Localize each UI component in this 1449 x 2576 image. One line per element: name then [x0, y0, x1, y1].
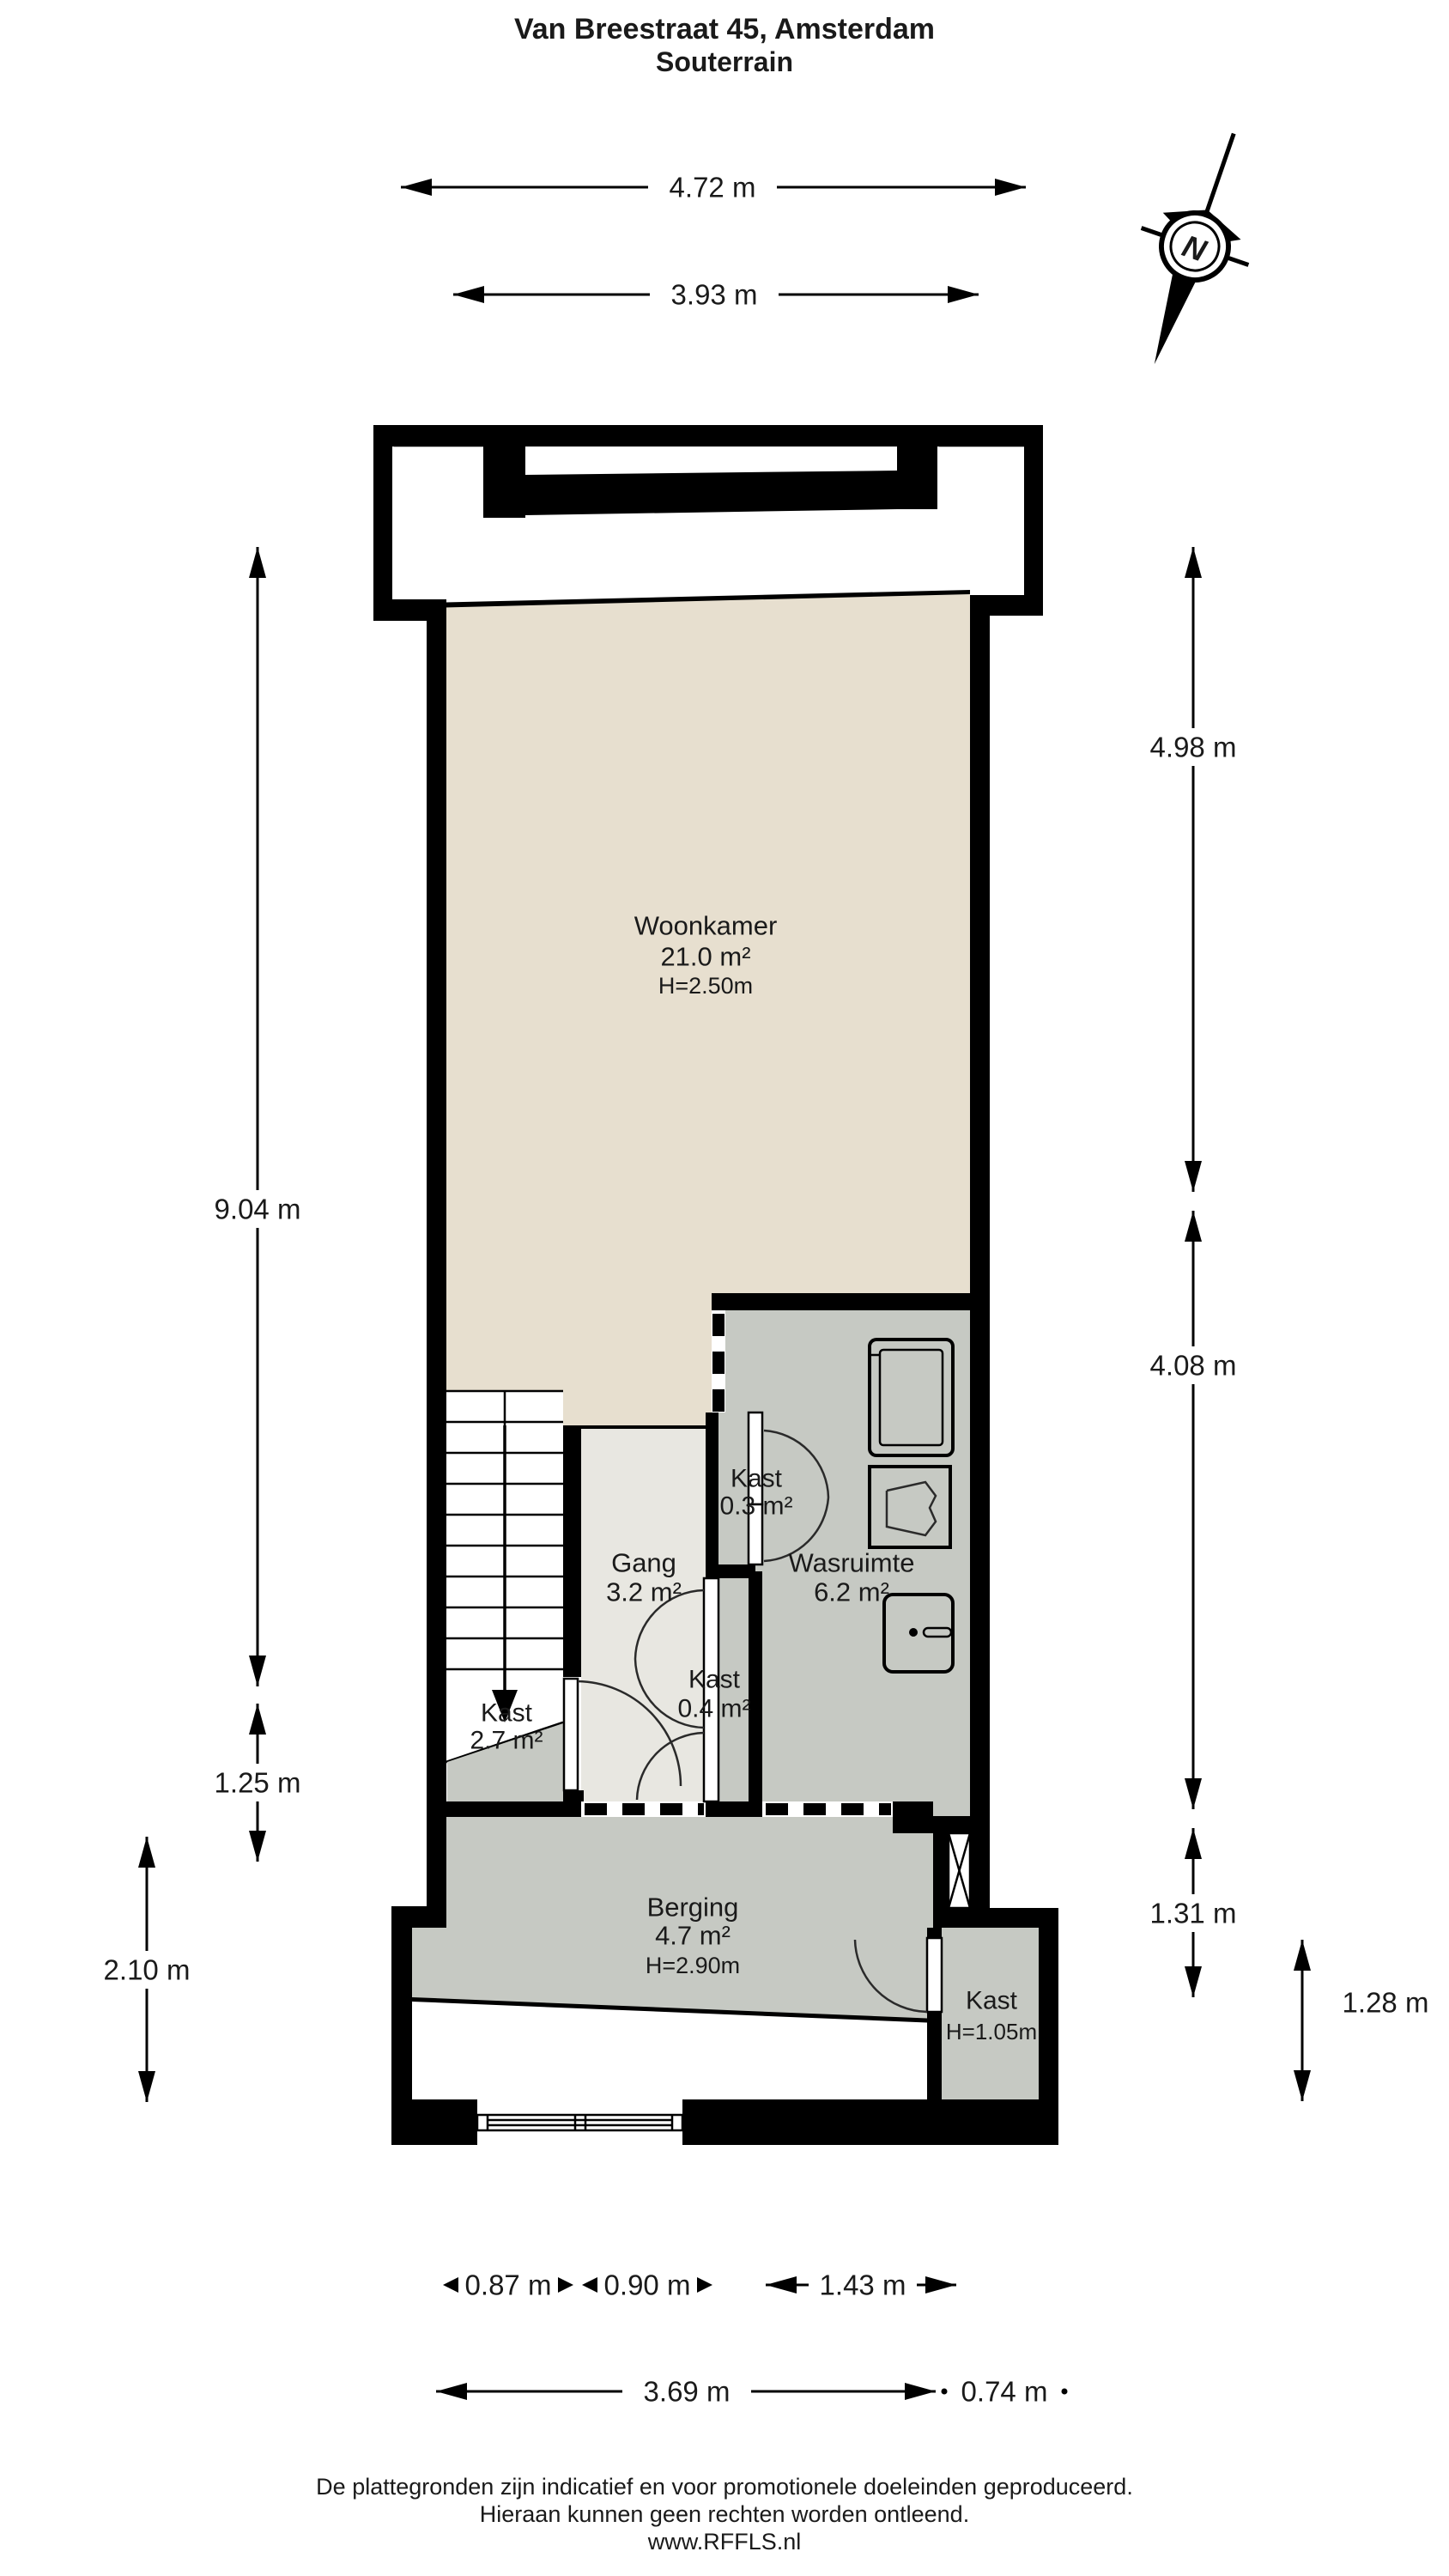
dimension-top-393: 3.93 m	[453, 276, 979, 313]
wall-wasruimte-top	[712, 1293, 970, 1310]
kast-klein-area: 0.3 m²	[719, 1492, 792, 1521]
wall-right-main	[970, 595, 990, 1816]
window-bottom	[477, 2115, 682, 2130]
gang-area: 3.2 m²	[606, 1577, 682, 1607]
wall-kast-onder-left-bottom	[927, 2012, 942, 2099]
wall-bottom-left-corner	[391, 2099, 477, 2145]
kast-onder-label: Kast	[966, 1987, 1018, 2015]
kast-klein-label: Kast	[731, 1465, 783, 1493]
dimension-left-904: 9.04 m	[193, 547, 322, 1686]
kast-onder-height: H=1.05m	[946, 2019, 1037, 2044]
wall-kast-onder-right	[1039, 1928, 1058, 2145]
kast-links-label: Kast	[481, 1699, 533, 1728]
wall-berging-top-left	[446, 1801, 581, 1817]
dim-left-2: 1.25 m	[215, 1767, 301, 1799]
dimension-bottom-090: 0.90 m	[582, 2269, 712, 2301]
wall-shaft-left	[933, 1833, 949, 1908]
wall-shaft-right	[970, 1833, 990, 1908]
facade-block-left	[483, 425, 525, 518]
dim-right-3: 1.31 m	[1150, 1898, 1237, 1929]
dimension-top-472: 4.72 m	[401, 168, 1026, 206]
dimension-bottom-369: 3.69 m	[436, 2372, 936, 2410]
dimension-bottom-074: 0.74 m	[942, 2376, 1068, 2408]
wall-left-upper	[373, 425, 392, 621]
dim-bottom-3: 1.43 m	[820, 2269, 906, 2301]
kast-midden-area: 0.4 m²	[677, 1695, 750, 1723]
wall-bottom-band	[682, 2099, 1058, 2145]
gang-label: Gang	[611, 1548, 676, 1578]
footer-website: www.RFFLS.nl	[647, 2529, 802, 2555]
dimension-right-498: 4.98 m	[1129, 547, 1258, 1192]
wall-right-upper	[1024, 425, 1043, 616]
page-subtitle: Souterrain	[656, 46, 793, 77]
dimension-bottom-143: 1.43 m	[766, 2269, 956, 2301]
facade-band	[525, 471, 897, 515]
wall-kast-midden-bottom	[706, 1801, 762, 1817]
wall-left-main	[427, 599, 446, 1928]
footer-disclaimer-1: De plattegronden zijn indicatief en voor…	[316, 2474, 1133, 2500]
wall-kast-onder-left-top	[927, 1928, 942, 1938]
dim-bottom-2: 0.90 m	[604, 2269, 691, 2301]
wall-step-right	[933, 1908, 1058, 1928]
dim-left-1: 9.04 m	[215, 1194, 301, 1225]
dimension-right-408: 4.08 m	[1129, 1211, 1258, 1809]
page-title: Van Breestraat 45, Amsterdam	[514, 13, 935, 46]
gang-top-edge	[563, 1425, 712, 1429]
dimension-bottom-087: 0.87 m	[443, 2269, 573, 2301]
wall-kast-klein-bottom	[706, 1564, 755, 1578]
floorplan-page: Van Breestraat 45, Amsterdam Souterrain …	[0, 0, 1449, 2576]
gang-floor	[581, 1428, 706, 1801]
footer-disclaimer-2: Hieraan kunnen geen rechten worden ontle…	[480, 2501, 969, 2527]
berging-area: 4.7 m²	[655, 1921, 731, 1951]
dimension-left-125: 1.25 m	[193, 1704, 322, 1862]
dim-right-1: 4.98 m	[1150, 732, 1237, 763]
berging-label: Berging	[647, 1893, 739, 1923]
facade-block-right	[897, 425, 937, 509]
dim-right-4: 1.28 m	[1343, 1987, 1429, 2019]
wall-kast-klein-left	[706, 1413, 718, 1564]
kast-midden-label: Kast	[688, 1666, 741, 1694]
dim-right-2: 4.08 m	[1150, 1350, 1237, 1382]
woonkamer-height: H=2.50m	[658, 973, 753, 999]
dimension-right-131: 1.31 m	[1129, 1828, 1258, 1997]
wasruimte-label: Wasruimte	[789, 1548, 915, 1578]
dim-top-2: 3.93 m	[671, 279, 758, 311]
kast-links-area: 2.7 m²	[470, 1727, 543, 1755]
dim-top-1: 4.72 m	[670, 172, 756, 204]
floorplan-drawing: Van Breestraat 45, Amsterdam Souterrain …	[0, 0, 1449, 2576]
dimension-right-128: 1.28 m	[1294, 1940, 1449, 2101]
dim-left-3: 2.10 m	[104, 1954, 191, 1986]
berging-height: H=2.90m	[646, 1953, 740, 1978]
dim-bottom-4: 3.69 m	[644, 2376, 731, 2408]
dim-bottom-5: 0.74 m	[961, 2376, 1048, 2408]
compass-north-icon: N	[1100, 115, 1287, 383]
dim-bottom-1: 0.87 m	[465, 2269, 552, 2301]
wall-wasruimte-bottom-right	[893, 1801, 933, 1833]
wasruimte-area: 6.2 m²	[814, 1577, 889, 1607]
dimension-left-210: 2.10 m	[82, 1837, 211, 2102]
shaft-box	[949, 1833, 970, 1908]
wall-gang-left	[563, 1428, 581, 1677]
woonkamer-area: 21.0 m²	[660, 942, 750, 972]
woonkamer-label: Woonkamer	[634, 911, 778, 941]
wall-shaft-top	[933, 1816, 990, 1833]
